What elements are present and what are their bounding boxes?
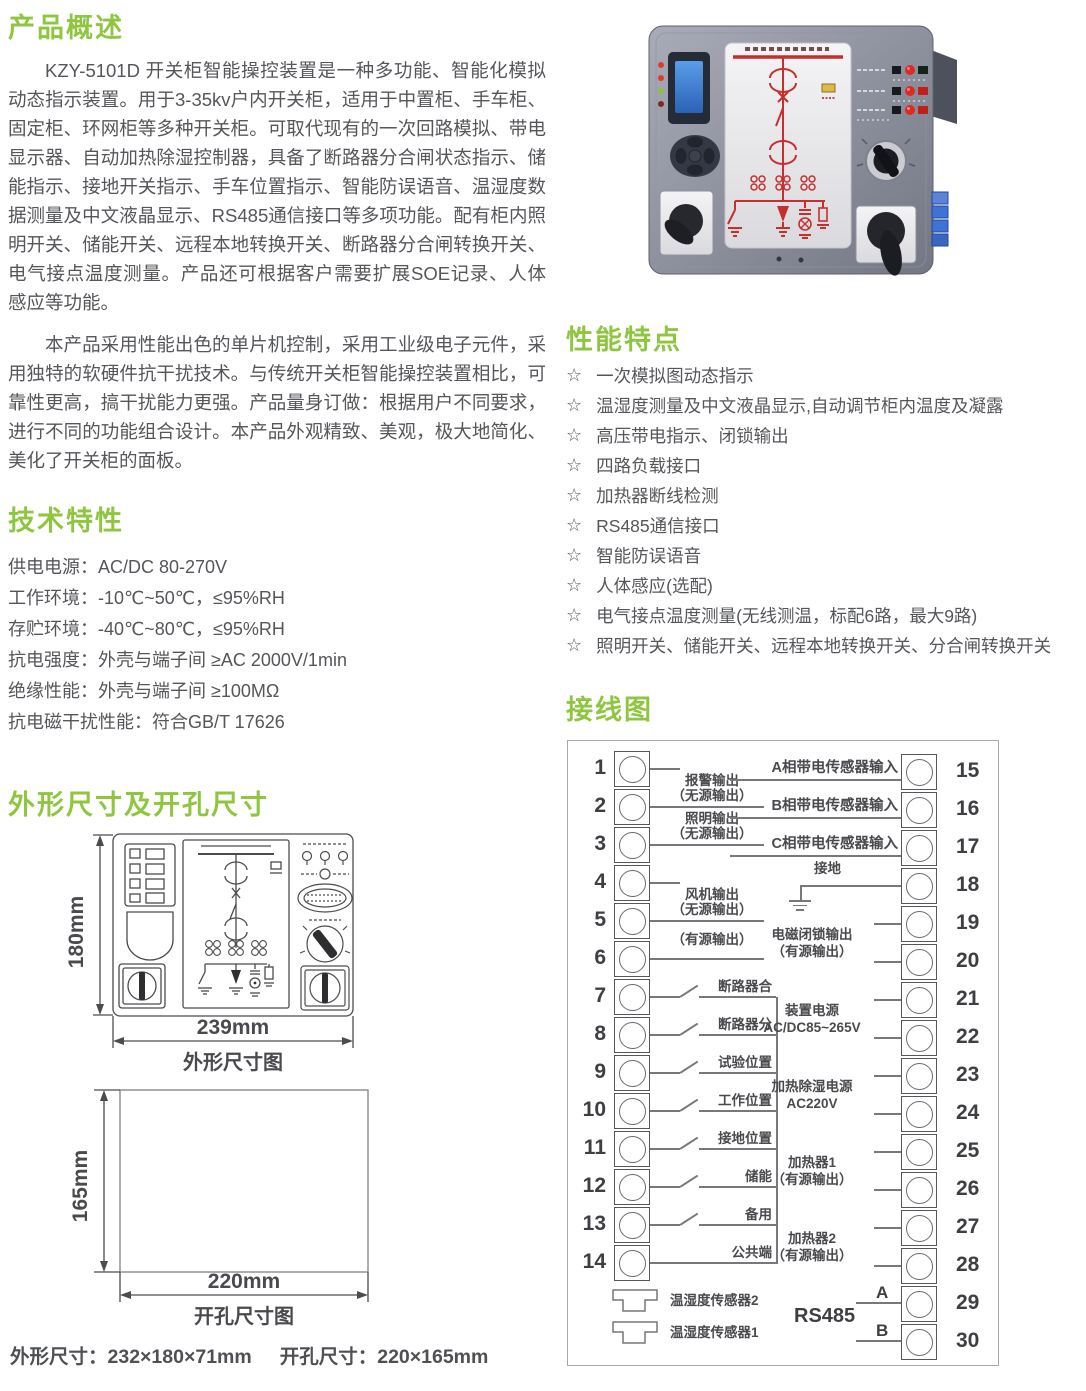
wire xyxy=(699,1224,776,1226)
wire xyxy=(874,1151,901,1153)
cutout-dimension-diagram: 165mm 220mm 开孔尺寸图 xyxy=(58,1078,388,1328)
terminal-number-right: 26 xyxy=(956,1177,996,1201)
terminal-screw xyxy=(906,1253,933,1280)
tech-spec-line: 存贮环境：-40℃~80℃，≤95%RH xyxy=(8,614,347,645)
terminal-number-left: 5 xyxy=(574,908,606,932)
star-bullet-icon: ☆ xyxy=(566,426,582,444)
terminal-number-right: 25 xyxy=(956,1139,996,1163)
star-bullet-icon: ☆ xyxy=(566,396,582,414)
terminal-left-3 xyxy=(614,827,650,863)
wire xyxy=(874,1037,901,1039)
wire xyxy=(650,768,680,770)
terminal-screw xyxy=(906,1329,933,1356)
ground-label: 接地 xyxy=(814,862,841,876)
terminal-right-26 xyxy=(901,1172,937,1208)
terminal-number-right: 23 xyxy=(956,1063,996,1087)
star-bullet-icon: ☆ xyxy=(566,486,582,504)
feature-text: RS485通信接口 xyxy=(596,513,720,538)
tech-heading: 技术特性 xyxy=(8,499,124,538)
overview-paragraph-1: KZY-5101D 开关柜智能操控装置是一种多功能、智能化模拟动态指示装置。用于… xyxy=(8,56,546,317)
wire xyxy=(650,996,680,998)
wiring-switch-label: 接地位置 xyxy=(686,1132,772,1146)
feature-item: ☆一次模拟图动态指示 xyxy=(566,366,1051,384)
wire xyxy=(730,817,901,819)
terminal-left-4 xyxy=(614,865,650,901)
tech-spec-line: 工作环境：-10℃~50℃，≤95%RH xyxy=(8,583,347,614)
outline-summary: 外形尺寸：232×180×71mm xyxy=(10,1340,252,1369)
terminal-screw xyxy=(619,832,646,859)
terminal-right-21 xyxy=(901,982,937,1018)
terminal-left-5 xyxy=(614,903,650,939)
feature-text: 加热器断线检测 xyxy=(596,483,719,508)
wire xyxy=(874,1227,901,1229)
star-bullet-icon: ☆ xyxy=(566,606,582,624)
terminal-screw xyxy=(619,1098,646,1125)
wiring-switch-label: 断路器合 xyxy=(686,980,772,994)
feature-text: 智能防误语音 xyxy=(596,543,701,568)
terminal-screw xyxy=(906,1215,933,1242)
sensor-connector-icon xyxy=(612,1289,662,1315)
terminal-right-22 xyxy=(901,1020,937,1056)
terminal-right-23 xyxy=(901,1058,937,1094)
feature-item: ☆智能防误语音 xyxy=(566,546,1051,564)
cutout-width-label: 220mm xyxy=(208,1270,280,1293)
terminal-screw xyxy=(906,797,933,824)
terminal-left-7 xyxy=(614,979,650,1015)
tech-spec-line: 供电电源：AC/DC 80-270V xyxy=(8,552,347,583)
terminal-screw xyxy=(619,1250,646,1277)
terminal-number-left: 8 xyxy=(574,1022,606,1046)
wiring-sensor-input-label: A相带电传感器输入 xyxy=(708,761,898,776)
terminal-screw xyxy=(619,870,646,897)
wiring-sensor-input-label: C相带电传感器输入 xyxy=(708,837,898,852)
rs485-a-label: A xyxy=(876,1283,888,1303)
ground-stem xyxy=(800,886,802,900)
terminal-right-24 xyxy=(901,1096,937,1132)
terminal-number-left: 9 xyxy=(574,1060,606,1084)
feature-text: 温湿度测量及中文液晶显示,自动调节柜内温度及凝露 xyxy=(596,393,1003,418)
terminal-right-16 xyxy=(901,792,937,828)
terminal-left-1 xyxy=(614,751,650,787)
rs485-b-label: B xyxy=(876,1321,888,1341)
wire xyxy=(650,1148,680,1150)
star-bullet-icon: ☆ xyxy=(566,366,582,384)
terminal-screw xyxy=(619,756,646,783)
terminal-right-27 xyxy=(901,1210,937,1246)
outline-caption: 外形尺寸图 xyxy=(183,1050,283,1074)
terminal-screw xyxy=(619,984,646,1011)
terminal-screw xyxy=(906,1291,933,1318)
terminal-left-6 xyxy=(614,941,650,977)
wire xyxy=(874,961,901,963)
terminal-screw xyxy=(906,759,933,786)
tech-spec-line: 绝缘性能：外壳与端子间 ≥100MΩ xyxy=(8,676,347,707)
feature-item: ☆电气接点温度测量(无线测温，标配6路，最大9路) xyxy=(566,606,1051,624)
wire xyxy=(856,1302,901,1304)
cutout-height-label: 165mm xyxy=(69,1150,92,1222)
terminal-screw xyxy=(906,835,933,862)
terminal-left-9 xyxy=(614,1055,650,1091)
wire xyxy=(874,923,901,925)
feature-item: ☆人体感应(选配) xyxy=(566,576,1051,594)
terminal-screw xyxy=(906,873,933,900)
dimensions-heading: 外形尺寸及开孔尺寸 xyxy=(8,783,269,822)
terminal-screw xyxy=(619,1174,646,1201)
terminal-number-left: 6 xyxy=(574,946,606,970)
terminal-screw xyxy=(619,1022,646,1049)
terminal-blocks xyxy=(932,192,948,246)
terminal-number-left: 10 xyxy=(574,1098,606,1122)
terminal-left-13 xyxy=(614,1207,650,1243)
terminal-screw xyxy=(906,1139,933,1166)
sensor-connector-icon xyxy=(612,1321,662,1347)
terminal-screw xyxy=(906,949,933,976)
wire xyxy=(699,996,776,998)
terminal-left-2 xyxy=(614,789,650,825)
wire xyxy=(874,1265,901,1267)
feature-text: 照明开关、储能开关、远程本地转换开关、分合闸转换开关 xyxy=(596,633,1051,658)
features-heading: 性能特点 xyxy=(566,318,682,357)
terminal-screw xyxy=(619,946,646,973)
terminal-number-right: 16 xyxy=(956,797,996,821)
features-list: ☆一次模拟图动态指示☆温湿度测量及中文液晶显示,自动调节柜内温度及凝露☆高压带电… xyxy=(566,366,1051,666)
terminal-screw xyxy=(906,1177,933,1204)
terminal-screw xyxy=(906,1025,933,1052)
terminal-number-right: 18 xyxy=(956,873,996,897)
feature-text: 四路负载接口 xyxy=(596,453,701,478)
cutout-caption: 开孔尺寸图 xyxy=(194,1305,294,1328)
wire xyxy=(650,1224,680,1226)
tech-spec-line: 抗电磁干扰性能：符合GB/T 17626 xyxy=(8,707,347,738)
mounting-bracket xyxy=(931,50,957,124)
dimension-summary: 外形尺寸：232×180×71mm 开孔尺寸：220×165mm xyxy=(10,1340,488,1369)
terminal-number-right: 24 xyxy=(956,1101,996,1125)
feature-item: ☆加热器断线检测 xyxy=(566,486,1051,504)
feature-text: 电气接点温度测量(无线测温，标配6路，最大9路) xyxy=(596,603,977,628)
terminal-number-left: 13 xyxy=(574,1212,606,1236)
terminal-left-10 xyxy=(614,1093,650,1129)
wire xyxy=(650,1072,680,1074)
dpad-buttons[interactable] xyxy=(670,135,720,177)
terminal-number-right: 28 xyxy=(956,1253,996,1277)
wire xyxy=(650,1110,680,1112)
feature-item: ☆四路负载接口 xyxy=(566,456,1051,474)
sensor-label: 温湿度传感器1 xyxy=(670,1326,759,1340)
common-bus xyxy=(776,997,778,1264)
ground-bar xyxy=(789,900,811,902)
terminal-left-11 xyxy=(614,1131,650,1167)
wire xyxy=(699,1148,776,1150)
star-bullet-icon: ☆ xyxy=(566,456,582,474)
terminal-screw xyxy=(619,794,646,821)
terminal-left-8 xyxy=(614,1017,650,1053)
terminal-number-right: 21 xyxy=(956,987,996,1011)
wiring-right-group-label: 装置电源AC/DC85~265V xyxy=(736,1002,888,1036)
wire xyxy=(874,999,901,1001)
overview-paragraph-2: 本产品采用性能出色的单片机控制，采用工业级电子元件，采用独特的软硬件抗干扰技术。… xyxy=(8,330,546,475)
terminal-right-25 xyxy=(901,1134,937,1170)
terminal-right-28 xyxy=(901,1248,937,1284)
terminal-right-20 xyxy=(901,944,937,980)
terminal-left-12 xyxy=(614,1169,650,1205)
tech-spec-line: 抗电强度：外壳与端子间 ≥AC 2000V/1min xyxy=(8,645,347,676)
terminal-number-right: 17 xyxy=(956,835,996,859)
star-bullet-icon: ☆ xyxy=(566,636,582,654)
ground-bar xyxy=(796,909,804,911)
wiring-output-label: 风机输出（无源输出） xyxy=(660,887,764,918)
terminal-number-right: 29 xyxy=(956,1291,996,1315)
wire xyxy=(874,1075,901,1077)
outline-dimension-diagram: 180mm 239mm 外形尺寸图 xyxy=(55,826,375,1076)
wiring-heading: 接线图 xyxy=(566,688,653,727)
mimic-panel xyxy=(725,43,851,248)
wiring-right-group-label: 加热器1（有源输出） xyxy=(736,1154,888,1188)
ground-bar xyxy=(793,905,807,907)
terminal-number-right: 30 xyxy=(956,1329,996,1353)
switch-knob-left[interactable] xyxy=(660,191,713,255)
terminal-number-right: 19 xyxy=(956,911,996,935)
terminal-right-18 xyxy=(901,868,937,904)
wiring-right-group-label: 加热器2（有源输出） xyxy=(736,1230,888,1264)
wiring-right-group-label: 电磁闭锁输出（有源输出） xyxy=(736,926,888,960)
star-bullet-icon: ☆ xyxy=(566,576,582,594)
wire xyxy=(730,779,901,781)
wiring-sensor-input-label: B相带电传感器输入 xyxy=(708,799,898,814)
star-bullet-icon: ☆ xyxy=(566,546,582,564)
terminal-number-right: 20 xyxy=(956,949,996,973)
terminal-number-right: 22 xyxy=(956,1025,996,1049)
outline-width-label: 239mm xyxy=(197,1016,269,1039)
terminal-number-left: 1 xyxy=(574,756,606,780)
terminal-number-left: 3 xyxy=(574,832,606,856)
overview-heading: 产品概述 xyxy=(8,6,124,45)
terminal-left-14 xyxy=(614,1245,650,1281)
terminal-screw xyxy=(619,908,646,935)
feature-item: ☆照明开关、储能开关、远程本地转换开关、分合闸转换开关 xyxy=(566,636,1051,654)
outline-height-label: 180mm xyxy=(65,896,88,968)
terminal-screw xyxy=(619,1060,646,1087)
feature-item: ☆高压带电指示、闭锁输出 xyxy=(566,426,1051,444)
terminal-number-left: 2 xyxy=(574,794,606,818)
terminal-right-17 xyxy=(901,830,937,866)
wire xyxy=(699,1072,776,1074)
wiring-switch-label: 试验位置 xyxy=(686,1056,772,1070)
wire xyxy=(650,882,680,884)
wire xyxy=(800,885,901,887)
star-bullet-icon: ☆ xyxy=(566,516,582,534)
terminal-screw xyxy=(906,911,933,938)
terminal-number-left: 14 xyxy=(574,1250,606,1274)
feature-text: 高压带电指示、闭锁输出 xyxy=(596,423,789,448)
tech-spec-list: 供电电源：AC/DC 80-270V工作环境：-10℃~50℃，≤95%RH存贮… xyxy=(8,552,347,738)
sensor-label: 温湿度传感器2 xyxy=(670,1294,759,1308)
terminal-screw xyxy=(619,1212,646,1239)
lcd-screen xyxy=(675,61,703,113)
terminal-number-right: 27 xyxy=(956,1215,996,1239)
rs485-label: RS485 xyxy=(794,1305,855,1328)
cutout-summary: 开孔尺寸：220×165mm xyxy=(280,1340,489,1369)
feature-item: ☆温湿度测量及中文液晶显示,自动调节柜内温度及凝露 xyxy=(566,396,1051,414)
feature-text: 一次模拟图动态指示 xyxy=(596,363,754,388)
wire xyxy=(874,1189,901,1191)
terminal-number-left: 7 xyxy=(574,984,606,1008)
terminal-number-left: 11 xyxy=(574,1136,606,1160)
terminal-screw xyxy=(906,1101,933,1128)
terminal-screw xyxy=(619,1136,646,1163)
terminal-right-15 xyxy=(901,754,937,790)
wire xyxy=(730,855,901,857)
wire xyxy=(650,920,764,922)
wire xyxy=(874,1113,901,1115)
feature-item: ☆RS485通信接口 xyxy=(566,516,1051,534)
feature-text: 人体感应(选配) xyxy=(596,573,713,598)
terminal-screw xyxy=(906,987,933,1014)
wiring-switch-label: 备用 xyxy=(686,1208,772,1222)
wire xyxy=(650,1034,680,1036)
terminal-number-left: 12 xyxy=(574,1174,606,1198)
wiring-diagram: 1234567891011121314151617181920212223242… xyxy=(567,740,999,1366)
terminal-right-29 xyxy=(901,1286,937,1322)
terminal-right-30 xyxy=(901,1324,937,1360)
terminal-number-right: 15 xyxy=(956,759,996,783)
wiring-right-group-label: 加热除湿电源AC220V xyxy=(736,1078,888,1112)
terminal-right-19 xyxy=(901,906,937,942)
terminal-screw xyxy=(906,1063,933,1090)
terminal-number-left: 4 xyxy=(574,870,606,894)
wire xyxy=(650,1186,680,1188)
wire xyxy=(856,1340,901,1342)
product-photo xyxy=(629,16,969,288)
